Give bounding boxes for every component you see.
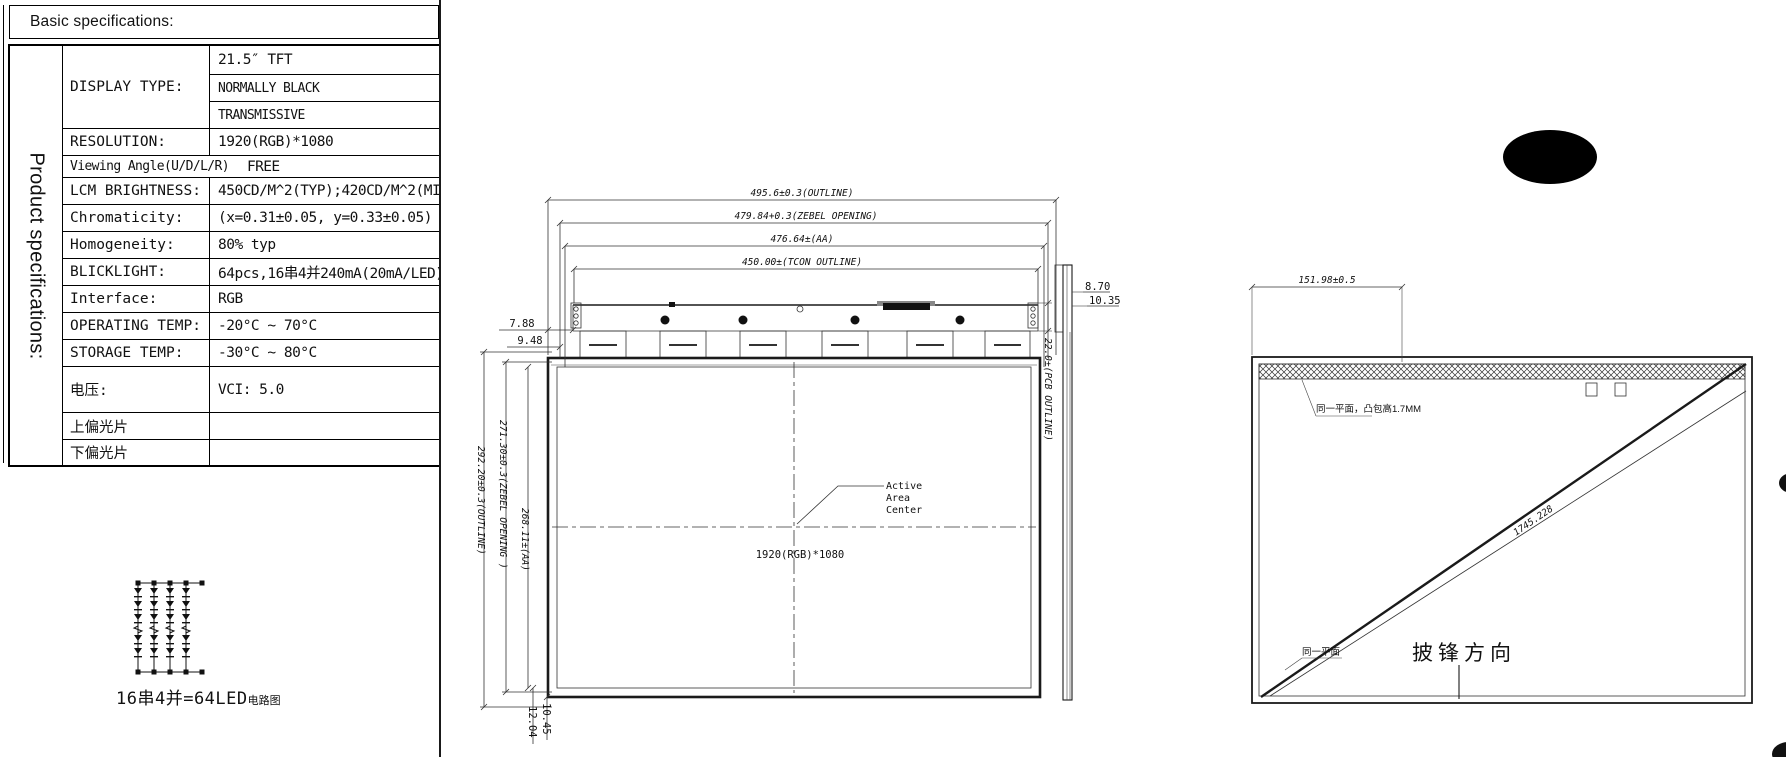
centerlines — [552, 362, 1036, 693]
rear-flatness-note-bottom-text: 同一平面 — [1302, 647, 1340, 658]
burr-direction-label: 披锋方向 — [1412, 641, 1516, 665]
active-area — [557, 367, 1031, 688]
dim-10-45: 10.45 — [540, 703, 552, 735]
dim-151-98: 151.98±0.5 — [1298, 275, 1355, 286]
dim-outline-width: 495.6±0.3(OUTLINE) — [751, 188, 854, 199]
rear-component-1 — [1586, 383, 1597, 396]
left-dimensions: 292.20±0.3(OUTLINE) 271.30±0.3(ZEBEL OPE… — [475, 349, 552, 710]
driver-ic-boxes — [580, 331, 1030, 358]
dim-7-88: 7.88 — [509, 318, 534, 330]
active-area-center-line3: Center — [886, 505, 922, 516]
rear-flatness-note-top-text: 同一平面，凸包高1.7MM — [1316, 403, 1421, 415]
rear-flatness-note-bottom: 同一平面 — [1285, 647, 1342, 670]
side-view-dimensions: 8.70 10.35 — [1072, 281, 1121, 307]
top-left-dimensions: 7.88 9.48 — [499, 318, 576, 350]
side-view: 8.70 10.35 — [1055, 265, 1121, 700]
rear-component-2 — [1615, 383, 1626, 396]
led-symbols — [134, 588, 190, 657]
dim-aa-width: 476.64±(AA) — [771, 234, 834, 245]
rear-hatch-band — [1259, 364, 1745, 379]
side-view-panel-edge — [1063, 265, 1072, 700]
dim-10-35: 10.35 — [1089, 295, 1121, 307]
dim-12-04: 12.04 — [526, 706, 538, 738]
page-edge-mark-corner — [1772, 742, 1786, 757]
dim-pcb-outline: 22.0±(PCB OUTLINE) — [1042, 338, 1053, 441]
pcb-connector-bar — [883, 303, 930, 310]
pcb-mount-holes — [661, 316, 965, 325]
stamp-ellipse — [1503, 130, 1597, 184]
rear-top-dimension: 151.98±0.5 — [1249, 275, 1405, 362]
dim-bezel-height: 271.30±0.3(ZEBEL OPENING ) — [497, 420, 508, 569]
dim-tcon-width: 450.00±(TCON OUTLINE) — [742, 257, 862, 268]
dim-8-70: 8.70 — [1085, 281, 1110, 293]
dim-aa-height: 268.11±(AA) — [519, 508, 530, 571]
rear-flatness-note-top: 同一平面，凸包高1.7MM — [1302, 380, 1421, 416]
active-area-center-line1: Active — [886, 481, 922, 492]
pcb-strip — [571, 301, 1038, 331]
active-area-center-callout: Active Area Center — [797, 481, 922, 524]
dim-outline-height: 292.20±0.3(OUTLINE) — [475, 446, 486, 555]
led-columns — [136, 581, 188, 674]
front-view: Active Area Center 1920(RGB)*1080 495.6±… — [475, 188, 1059, 744]
led-circuit-diagram — [134, 581, 204, 674]
page-edge-mark-right — [1779, 473, 1786, 493]
pcb-component-square — [669, 302, 675, 307]
dim-9-48: 9.48 — [517, 335, 542, 347]
pcb-hole — [797, 306, 803, 312]
technical-drawings: Active Area Center 1920(RGB)*1080 495.6±… — [0, 0, 1786, 757]
drawing-sheet: Basic specifications: Product specificat… — [0, 0, 1786, 757]
rear-view: 1745.228 151.98±0.5 同一平面，凸包高1.7MM 同一平面 — [1249, 275, 1752, 703]
burr-direction-callout: 披锋方向 — [1412, 641, 1516, 699]
dim-bezel-width: 479.84+0.3(ZEBEL OPENING) — [735, 211, 878, 222]
top-dimensions: 495.6±0.3(OUTLINE) 479.84+0.3(ZEBEL OPEN… — [545, 188, 1059, 367]
active-area-center-line2: Area — [886, 493, 910, 504]
resolution-annotation: 1920(RGB)*1080 — [756, 549, 845, 561]
